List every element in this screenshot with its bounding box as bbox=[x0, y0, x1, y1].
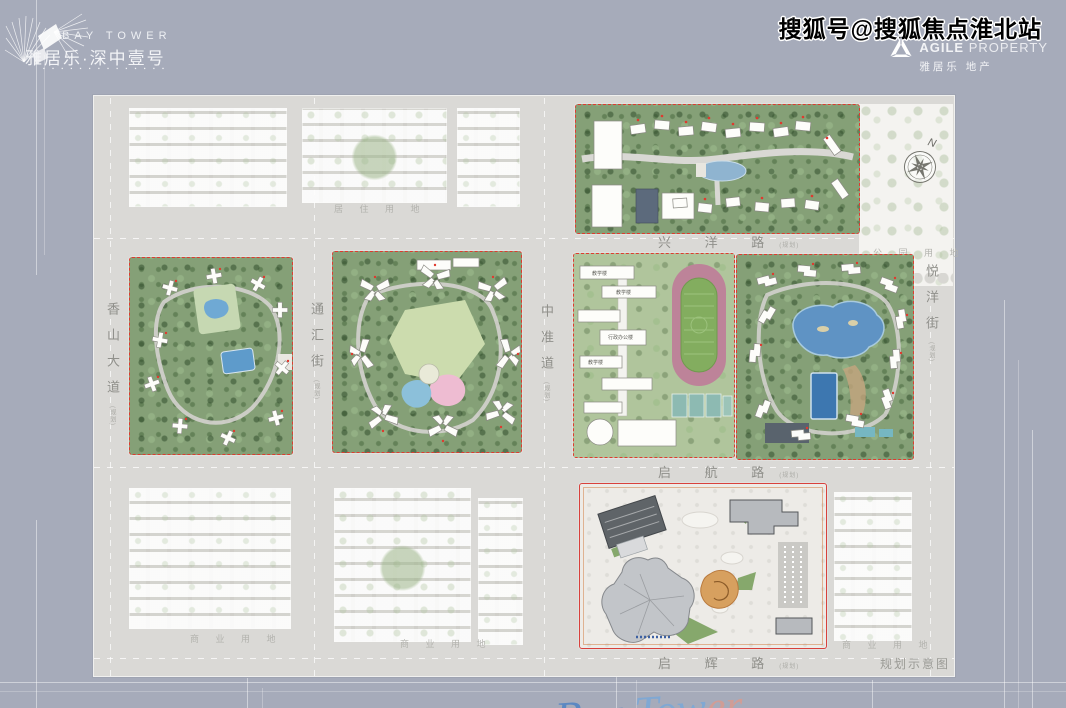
context-blocks-s bbox=[334, 488, 471, 642]
school-building-label: 教学楼 bbox=[616, 289, 631, 296]
west-plot-illustration bbox=[130, 258, 292, 454]
developer-name-en: AGILE PROPERTY bbox=[919, 40, 1048, 55]
road-label-zhonghuai: 中准道(规划) bbox=[537, 304, 556, 402]
bay-tower-script-signature: Bay Tower bbox=[553, 680, 744, 708]
master-plan-map: N 公 园 用 地 bbox=[93, 95, 955, 677]
plot-central-park-residential bbox=[332, 251, 522, 453]
land-use-label-commercial: 商 业 用 地 bbox=[842, 638, 935, 651]
road-name: 中准道 bbox=[539, 304, 554, 382]
logo-title-en: BAY TOWER bbox=[62, 30, 172, 42]
plot-east-residential bbox=[736, 254, 914, 460]
road-centerline bbox=[94, 658, 954, 659]
land-use-label-commercial: 商 业 用 地 bbox=[400, 637, 493, 650]
school-building-label: 教学楼 bbox=[592, 270, 607, 277]
site-plan-poster: BAY TOWER 雅居乐·深中壹号 ▪ ▪ ▪ ▪ ▪ ▪ ▪ ▪ ▪ ▪ ▪… bbox=[0, 0, 1066, 708]
road-suffix: (规划) bbox=[543, 382, 549, 402]
road-label-qihang: 启 航 路(规划) bbox=[658, 462, 799, 481]
decor-line bbox=[36, 520, 37, 708]
road-suffix: (规划) bbox=[779, 243, 799, 249]
decor-line bbox=[1018, 360, 1019, 708]
decor-line bbox=[872, 680, 873, 708]
developer-name-en-bold: AGILE bbox=[919, 40, 964, 55]
land-use-label-residential: 居 住 用 地 bbox=[334, 202, 427, 215]
decor-line bbox=[0, 682, 1066, 683]
central-plot-illustration bbox=[333, 252, 521, 452]
logo-tagline-dots: ▪ ▪ ▪ ▪ ▪ ▪ ▪ ▪ ▪ ▪ ▪ ▪ ▪ ▪ bbox=[43, 66, 167, 72]
plot-school: 教学楼 教学楼 行政办公楼 教学楼 bbox=[573, 253, 735, 458]
developer-name-en-light: PROPERTY bbox=[969, 40, 1048, 55]
road-name: 通汇街 bbox=[309, 302, 324, 380]
road-name: 香山大道 bbox=[105, 302, 120, 406]
developer-name-cn: 雅居乐 地产 bbox=[919, 59, 1048, 74]
road-suffix: (规划) bbox=[928, 342, 934, 362]
road-label-xingyang: 兴 洋 路(规划) bbox=[658, 232, 799, 251]
decor-line bbox=[0, 691, 1066, 692]
developer-logo: AGILE PROPERTY 雅居乐 地产 bbox=[889, 36, 1048, 74]
plot-commercial-complex bbox=[579, 483, 827, 649]
context-blocks-n2 bbox=[457, 108, 520, 207]
context-blocks-s2 bbox=[478, 498, 523, 645]
road-suffix: (规划) bbox=[779, 473, 799, 479]
map-caption: 规划示意图 bbox=[880, 655, 950, 672]
road-centerline bbox=[94, 467, 954, 468]
road-label-xiangshan: 香山大道(规划) bbox=[103, 302, 122, 426]
road-label-tonghui: 通汇街(规划) bbox=[307, 302, 326, 400]
east-plot-illustration bbox=[737, 255, 913, 459]
decor-line bbox=[1032, 430, 1033, 708]
road-suffix: (规划) bbox=[313, 380, 319, 400]
road-centerline bbox=[94, 238, 954, 239]
road-name: 兴 洋 路 bbox=[658, 235, 779, 250]
context-blocks-se bbox=[834, 492, 912, 641]
road-name: 启 辉 路 bbox=[658, 656, 779, 671]
decor-line bbox=[44, 55, 45, 255]
commercial-plot-illustration bbox=[580, 484, 826, 648]
agile-triangle-icon bbox=[889, 36, 913, 58]
compass-north-label: N bbox=[926, 136, 937, 150]
context-blocks-n bbox=[302, 108, 447, 203]
context-blocks-sw bbox=[129, 488, 291, 629]
context-blocks-nw bbox=[129, 108, 287, 207]
road-label-qihui: 启 辉 路(规划) bbox=[658, 653, 799, 672]
school-building-label: 行政办公楼 bbox=[608, 334, 633, 341]
road-name: 启 航 路 bbox=[658, 465, 779, 480]
road-name: 悦洋街 bbox=[924, 264, 939, 342]
decor-line bbox=[1004, 300, 1005, 708]
plot-west-residential bbox=[129, 257, 293, 455]
school-building-label: 教学楼 bbox=[588, 359, 603, 366]
land-use-label-commercial: 商 业 用 地 bbox=[190, 632, 283, 645]
compass-icon: N bbox=[895, 132, 947, 190]
road-label-yueyang: 悦洋街(规划) bbox=[922, 264, 941, 362]
school-plot-illustration bbox=[574, 254, 734, 457]
road-suffix: (规划) bbox=[779, 664, 799, 670]
north-plot-illustration bbox=[576, 105, 859, 233]
road-suffix: (规划) bbox=[109, 406, 115, 426]
plot-north-residential bbox=[575, 104, 860, 234]
